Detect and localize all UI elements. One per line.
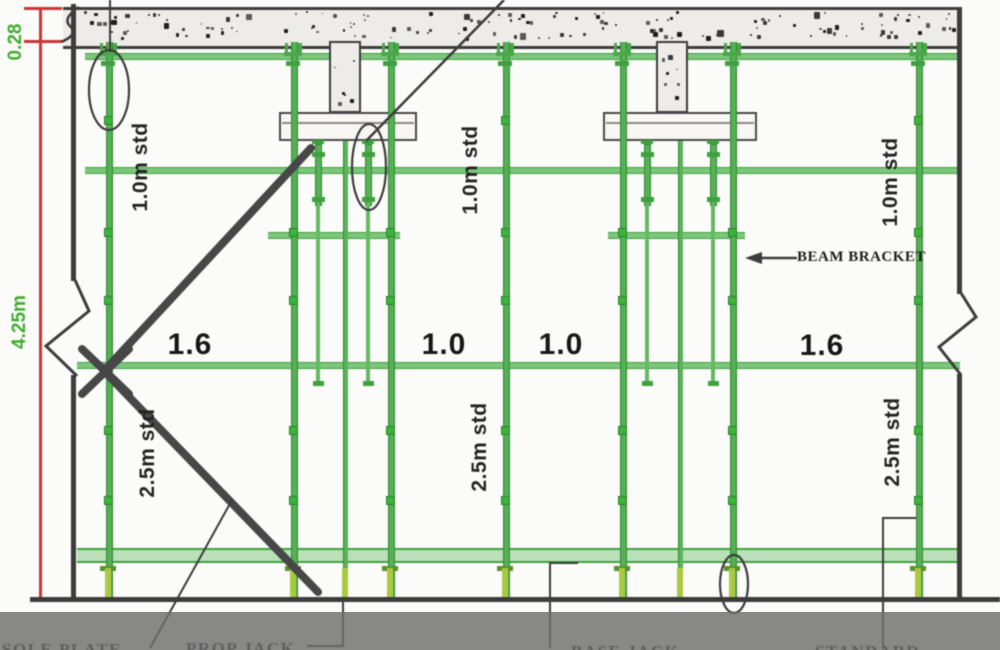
- concrete-speckle: [125, 14, 130, 19]
- concrete-speckle: [659, 28, 663, 32]
- label-25m-standard: 2.5m std: [136, 408, 160, 497]
- concrete-speckle: [206, 34, 210, 38]
- concrete-speckle: [615, 24, 617, 26]
- prop-jack-collar: [312, 152, 325, 157]
- concrete-speckle: [392, 27, 396, 31]
- concrete-speckle: [861, 23, 863, 25]
- coupler: [914, 296, 923, 305]
- concrete-speckle: [706, 36, 710, 40]
- prop-jack-end-cap: [642, 381, 653, 386]
- u-head-collar: [911, 61, 925, 66]
- concrete-speckle: [918, 31, 922, 35]
- concrete-speckle: [518, 18, 521, 21]
- concrete-speckle: [153, 13, 156, 16]
- coupler: [104, 496, 113, 505]
- concrete-speckle: [364, 19, 366, 21]
- wall-left: [71, 375, 76, 600]
- concrete-speckle: [538, 37, 540, 39]
- concrete-speckle: [429, 29, 432, 32]
- label-1m-standard: 1.0m std: [459, 125, 483, 214]
- concrete-speckle: [646, 21, 650, 25]
- prop-jack-tube: [645, 204, 649, 382]
- concrete-speckle: [316, 31, 318, 33]
- ledger-tube: [85, 53, 960, 60]
- concrete-speckle: [148, 14, 150, 16]
- coupler: [728, 426, 737, 435]
- coupler: [501, 496, 510, 505]
- concrete-speckle: [221, 28, 223, 30]
- label-1m-standard: 1.0m std: [129, 122, 153, 211]
- u-head-crossbar: [99, 52, 117, 56]
- concrete-speckle: [754, 20, 757, 23]
- concrete-speckle: [463, 27, 467, 31]
- u-head-crossbar: [496, 52, 514, 56]
- coupler: [104, 116, 113, 125]
- bay-dim: 1.0: [539, 328, 584, 362]
- concrete-speckle: [498, 14, 500, 16]
- ledger-tube: [85, 167, 960, 174]
- concrete-speckle: [470, 19, 473, 22]
- prop-jack-collar: [362, 152, 375, 157]
- u-head-collar: [725, 61, 739, 66]
- concrete-speckle: [182, 28, 185, 31]
- concrete-speckle: [604, 22, 607, 25]
- ledger-tube: [608, 232, 745, 239]
- base-jack-stem: [502, 568, 508, 599]
- android-nav-bar: [0, 612, 1000, 650]
- concrete-speckle: [894, 35, 898, 39]
- coupler: [618, 426, 627, 435]
- concrete-speckle: [668, 55, 672, 59]
- concrete-speckle: [560, 33, 563, 36]
- base-jack-stem: [619, 568, 625, 599]
- concrete-speckle: [861, 27, 865, 31]
- concrete-speckle: [284, 29, 288, 33]
- standard-tube: [730, 42, 737, 600]
- prop-jack-end-cap: [363, 381, 374, 386]
- concrete-speckle: [246, 14, 252, 20]
- downstand-beam: [656, 41, 688, 113]
- bay-dim: 1.6: [168, 328, 213, 362]
- dim-line-red: [39, 8, 42, 600]
- coupler: [386, 496, 395, 505]
- u-head-crossbar: [381, 52, 399, 56]
- dim-total-height: 4.25m: [9, 295, 31, 349]
- coupler: [618, 296, 627, 305]
- concrete-speckle: [312, 25, 315, 28]
- beam-bracket-label: BEAM BRACKET: [797, 249, 926, 266]
- concrete-speckle: [948, 13, 950, 15]
- concrete-speckle: [306, 11, 308, 13]
- concrete-speckle: [367, 15, 369, 17]
- standard-tube: [106, 42, 113, 600]
- coupler: [289, 296, 298, 305]
- concrete-speckle: [427, 32, 429, 34]
- centre-prop-tube: [678, 141, 683, 600]
- concrete-speckle: [465, 37, 469, 41]
- concrete-speckle: [833, 32, 837, 36]
- coupler: [289, 496, 298, 505]
- concrete-speckle: [548, 37, 550, 39]
- u-head-crossbar: [284, 52, 302, 56]
- base-jack-stem: [290, 568, 296, 599]
- base-jack-stem: [105, 568, 111, 599]
- concrete-speckle: [221, 31, 224, 34]
- concrete-speckle: [97, 22, 101, 26]
- prop-jack-collar: [641, 197, 654, 202]
- base-jack-stem: [729, 568, 735, 599]
- concrete-speckle: [664, 83, 667, 86]
- concrete-speckle: [653, 32, 657, 36]
- concrete-speckle: [508, 13, 512, 17]
- label-25m-standard: 2.5m std: [468, 402, 492, 491]
- concrete-speckle: [677, 32, 682, 37]
- concrete-speckle: [111, 20, 117, 26]
- prop-jack-tube: [366, 204, 370, 382]
- coupler: [728, 496, 737, 505]
- concrete-speckle: [879, 13, 883, 17]
- concrete-speckle: [176, 33, 179, 36]
- prop-jack-collar: [707, 152, 720, 157]
- concrete-speckle: [164, 23, 170, 29]
- scaffold-drawing-layer: [0, 0, 1000, 650]
- wall-left: [71, 4, 76, 281]
- u-head-collar: [498, 61, 512, 66]
- drawing-sheet: 0.28 4.25m 1.0m std 1.0m std 1.0m std 2.…: [0, 0, 1000, 650]
- concrete-speckle: [236, 14, 239, 17]
- concrete-speckle: [158, 14, 160, 16]
- concrete-speckle: [768, 19, 770, 21]
- concrete-speckle: [530, 21, 533, 24]
- prop-jack-end-cap: [708, 381, 719, 386]
- concrete-speckle: [103, 22, 107, 26]
- coupler: [386, 426, 395, 435]
- label-25m-standard: 2.5m std: [881, 397, 905, 486]
- coupler: [104, 228, 113, 237]
- concrete-speckle: [596, 15, 600, 19]
- prop-jack-collar: [362, 197, 375, 202]
- concrete-speckle: [226, 17, 230, 21]
- coupler: [501, 426, 510, 435]
- concrete-speckle: [477, 20, 481, 24]
- coupler: [728, 228, 737, 237]
- coupler: [289, 426, 298, 435]
- concrete-speckle: [664, 35, 668, 39]
- concrete-speckle: [493, 32, 497, 36]
- dim-tick-red: [24, 7, 62, 10]
- beam-bracket: [279, 112, 417, 141]
- prop-jack-end-cap: [313, 381, 324, 386]
- coupler: [501, 116, 510, 125]
- wall-right: [957, 374, 962, 600]
- concrete-speckle: [236, 31, 238, 33]
- concrete-speckle: [823, 30, 826, 33]
- concrete-speckle: [824, 12, 826, 14]
- dim-slab-thickness: 0.28: [5, 24, 27, 61]
- u-head-collar: [615, 61, 629, 66]
- concrete-speckle: [675, 96, 679, 100]
- concrete-speckle: [407, 27, 411, 31]
- dim-tick-red: [24, 40, 62, 43]
- concrete-speckle: [890, 31, 892, 33]
- concrete-speckle: [569, 35, 571, 37]
- downstand-beam: [329, 41, 361, 113]
- u-head-collar: [383, 61, 397, 66]
- concrete-speckle: [906, 19, 910, 23]
- u-head-crossbar: [723, 52, 741, 56]
- label-1m-standard: 1.0m std: [879, 137, 903, 226]
- concrete-speckle: [121, 37, 124, 40]
- concrete-speckle: [354, 35, 356, 37]
- concrete-speckle: [211, 27, 214, 30]
- concrete-speckle: [894, 17, 897, 20]
- base-jack-stem: [915, 568, 921, 599]
- concrete-speckle: [350, 26, 352, 28]
- concrete-speckle: [926, 23, 930, 27]
- coupler: [386, 228, 395, 237]
- wall-right: [957, 7, 962, 294]
- concrete-speckle: [952, 28, 956, 32]
- concrete-speckle: [127, 30, 129, 32]
- coupler: [618, 496, 627, 505]
- standard-tube: [291, 42, 298, 600]
- coupler: [386, 296, 395, 305]
- concrete-speckle: [827, 28, 833, 34]
- concrete-speckle: [667, 19, 669, 21]
- coupler: [501, 296, 510, 305]
- concrete-speckle: [942, 27, 946, 31]
- coupler: [501, 228, 510, 237]
- concrete-speckle: [575, 17, 578, 20]
- coupler: [914, 228, 923, 237]
- concrete-speckle: [757, 35, 761, 39]
- u-head-crossbar: [909, 52, 927, 56]
- coupler: [914, 426, 923, 435]
- prop-jack-collar: [312, 197, 325, 202]
- concrete-speckle: [835, 25, 839, 29]
- coupler: [914, 116, 923, 125]
- concrete-speckle: [793, 24, 796, 27]
- u-head-collar: [286, 61, 300, 66]
- concrete-speckle: [429, 12, 433, 16]
- standard-tube: [388, 42, 395, 600]
- standard-tube: [503, 42, 510, 600]
- base-jack-stem: [342, 568, 348, 599]
- prop-jack-tube: [711, 204, 715, 382]
- prop-jack-collar: [641, 152, 654, 157]
- coupler: [914, 496, 923, 505]
- coupler: [728, 296, 737, 305]
- u-head-collar: [101, 61, 115, 66]
- concrete-speckle: [514, 35, 518, 39]
- mobile-screenshot: 0.28 4.25m 1.0m std 1.0m std 1.0m std 2.…: [0, 0, 1000, 650]
- concrete-speckle: [352, 101, 354, 103]
- concrete-speckle: [814, 12, 821, 19]
- prop-jack-tube: [316, 204, 320, 382]
- coupler: [104, 426, 113, 435]
- centre-prop-tube: [343, 141, 348, 600]
- ground-line: [30, 597, 1000, 602]
- concrete-speckle: [949, 27, 951, 29]
- concrete-speckle: [602, 27, 605, 30]
- concrete-speckle: [362, 35, 365, 38]
- concrete-speckle: [464, 14, 470, 20]
- standard-tube: [916, 42, 923, 600]
- concrete-speckle: [779, 15, 781, 17]
- concrete-speckle: [880, 34, 882, 36]
- base-jack-stem: [387, 568, 393, 599]
- concrete-speckle: [520, 33, 527, 40]
- standard-tube: [620, 42, 627, 600]
- prop-jack-collar: [707, 197, 720, 202]
- concrete-speckle: [600, 20, 604, 24]
- concrete-speckle: [656, 19, 658, 21]
- bottom-ledger-tube: [77, 548, 960, 563]
- concrete-speckle: [94, 13, 98, 17]
- u-head-crossbar: [613, 52, 631, 56]
- coupler: [618, 228, 627, 237]
- coupler: [289, 228, 298, 237]
- bay-dim: 1.0: [422, 328, 467, 362]
- bay-dim: 1.6: [800, 329, 845, 363]
- concrete-speckle: [342, 92, 345, 95]
- base-jack-stem: [677, 568, 683, 599]
- concrete-speckle: [763, 21, 767, 25]
- concrete-speckle: [887, 35, 891, 39]
- coupler: [104, 296, 113, 305]
- concrete-speckle: [333, 14, 337, 18]
- concrete-speckle: [84, 11, 87, 14]
- concrete-speckle: [521, 14, 525, 18]
- concrete-speckle: [338, 102, 342, 106]
